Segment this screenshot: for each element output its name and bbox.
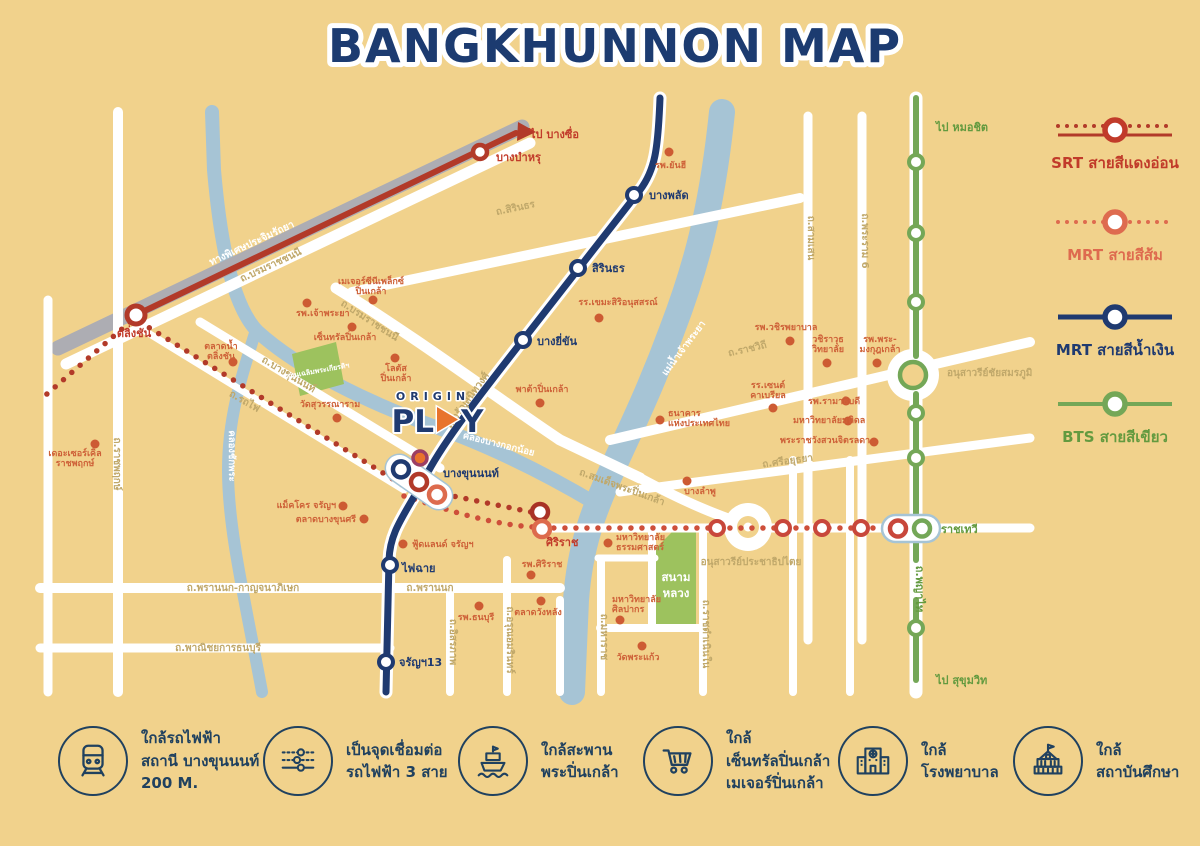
poi-dot [769, 404, 778, 413]
hospital-icon [852, 740, 894, 782]
poi-dot [683, 477, 692, 486]
station-bts-2 [909, 226, 923, 240]
map-label: ไฟฉาย [400, 561, 435, 575]
poi-dot [665, 148, 674, 157]
legend-green-label: BTS สายสีเขียว [1062, 428, 1168, 446]
bangkhunnon-map-page: ทางพิเศษประจิมรัถยาถ.บรมราชชนนีถ.บรมราชช… [0, 0, 1200, 846]
station-orange-4 [854, 521, 868, 535]
map-label: ฟู้ดแลนด์ จรัญฯ [412, 538, 474, 550]
map-label: ราชเทวี [941, 523, 978, 536]
map-label: ถ.พญาไท [913, 566, 927, 612]
map-label: ถ.พรานนก-กาญจนาภิเษก [187, 582, 299, 594]
map-label: ราชพฤกษ์ [56, 457, 95, 469]
feature-interchange: เป็นจุดเชื่อมต่อ รถไฟฟ้า 3 สาย [263, 726, 448, 796]
poi-dot [537, 597, 546, 606]
station-ratchathewi-interchange [882, 515, 940, 542]
page-title: BANGKHUNNON MAP [328, 19, 902, 73]
poi-dot [638, 642, 647, 651]
station-bts-6 [909, 621, 923, 635]
station-sirindhorn [571, 261, 585, 275]
boat-icon [472, 740, 514, 782]
map-label: ธรรมศาสตร์ [616, 541, 664, 553]
map-label: ถ.มหาราช [598, 614, 609, 661]
poi-dot [616, 616, 625, 625]
transit-lines-icon [277, 740, 319, 782]
map-label: มหาวิทยาลัยมหิดล [793, 415, 865, 426]
map-label: จรัญฯ13 [399, 656, 442, 669]
poi-dot [399, 540, 408, 549]
road-si-ayutthaya [620, 438, 1030, 492]
map-label: ถ.สามเสน [805, 216, 816, 261]
map-label: ศิลปากร [612, 604, 645, 615]
feature-strip: ใกล้รถไฟฟ้า สถานี บางขุนนนท์ 200 M. เป็น… [0, 706, 1200, 836]
map-label: คาเบรียล [750, 390, 786, 401]
legend-orange-label: MRT สายสีส้ม [1067, 246, 1163, 264]
map-label: ถ.พรานนก [406, 583, 453, 594]
poi-dot [91, 440, 100, 449]
feature-shopping: ใกล้ เซ็นทรัลปิ่นเกล้า เมเจอร์ปิ่นเกล้า [643, 726, 830, 796]
logo-origin-text: ORIGIN [396, 390, 470, 403]
station-bang-yi-khan [516, 333, 530, 347]
legend-blue-label: MRT สายสีน้ำเงิน [1056, 338, 1175, 359]
station-siriraj-mrt [534, 521, 550, 537]
map-label: วิทยาลัย [811, 344, 844, 355]
map-label: ตลาดบางขุนศรี [296, 514, 356, 525]
project-location-dot [413, 451, 427, 465]
poi-dot [303, 299, 312, 308]
poi-dot [333, 414, 342, 423]
map-label: รร.เซนต์ [751, 379, 785, 391]
legend-blue-station-icon [1105, 307, 1125, 327]
map-label: ถ.พาณิชยการธนบุรี [175, 642, 261, 654]
map-label: ตลาดวังหลัง [514, 607, 562, 618]
train-icon [72, 740, 114, 782]
map-label: รร.เขมะสิริอนุสสรณ์ [578, 296, 658, 308]
map-label: บางบำหรุ [496, 151, 541, 165]
feature-train: ใกล้รถไฟฟ้า สถานี บางขุนนนท์ 200 M. [58, 726, 259, 796]
poi-dot [823, 359, 832, 368]
poi-dot [786, 337, 795, 346]
legend-bts: BTS สายสีเขียว [1058, 394, 1172, 446]
map-label: หลวง [663, 586, 690, 600]
map-label: ถ.ราชวิถี [727, 339, 768, 360]
station-bang-bamru [473, 145, 487, 159]
poi-dot [656, 416, 665, 425]
poi-dot [870, 438, 879, 447]
map-label: ศิริราช [546, 536, 579, 549]
map-label: แม็คโคร จรัญฯ [277, 498, 336, 511]
poi-dot [536, 399, 545, 408]
station-bts-5 [909, 451, 923, 465]
map-label: พาต้าปิ่นเกล้า [516, 382, 569, 395]
map-label: ธนาคาร [668, 409, 701, 419]
feature-school: ใกล้ สถาบันศึกษา [1013, 726, 1179, 796]
map-labels-layer: ทางพิเศษประจิมรัถยาถ.บรมราชชนนีถ.บรมราชช… [48, 120, 1032, 688]
station-siriraj-srt [532, 504, 548, 520]
map-label: วัดสุวรรณาราม [300, 399, 360, 410]
poi-dot [595, 314, 604, 323]
map-label: เมเจอร์ซีนีเพล็กซ์ [338, 274, 404, 287]
map-label: รพ.ศิริราช [522, 559, 563, 570]
station-fai-chai [383, 558, 397, 572]
map-label: รพ.ธนบุรี [458, 612, 495, 623]
road-layer [40, 98, 1030, 692]
map-label: บางพลัด [649, 189, 689, 202]
station-orange-1 [710, 521, 724, 535]
map-label: รพ.วชิรพยาบาล [755, 322, 818, 333]
map-label: อนุสาวรีย์ประชาธิปไตย [701, 555, 802, 568]
map-label: มงกุฎเกล้า [860, 344, 901, 355]
map-label: ไป บางซื่อ [528, 126, 579, 141]
map-label: วัดพระแก้ว [617, 652, 660, 663]
map-label: ถ.พระราม 6 [859, 213, 870, 268]
map-label: บางขุนนนท์ [443, 467, 499, 481]
legend-mrt-orange: MRT สายสีส้ม [1058, 212, 1172, 264]
map-label: รพ.พระ- [863, 335, 897, 345]
legend-srt-station-icon [1105, 120, 1125, 140]
victory-monument-ring [900, 362, 926, 388]
legend: SRT สายสีแดงอ่อน MRT สายสีส้ม MRT สายสีน… [1051, 120, 1179, 446]
map-label: เซ็นทรัลปิ่นเกล้า [314, 330, 377, 343]
map-label: สนาม [662, 570, 691, 584]
map-label: อนุสาวรีย์ชัยสมรภูมิ [947, 367, 1032, 380]
poi-dot [475, 602, 484, 611]
cart-icon [657, 740, 699, 782]
feature-text: ใกล้รถไฟฟ้า [141, 727, 259, 750]
station-bts-1 [909, 155, 923, 169]
map-label: เดอะเซอร์เคิล [48, 447, 101, 459]
feature-bridge: ใกล้สะพาน พระปิ่นเกล้า [458, 726, 619, 796]
poi-dot [604, 539, 613, 548]
srt-line-solid [136, 133, 516, 315]
map-label: บางยี่ขัน [537, 333, 577, 348]
station-charan13 [379, 655, 393, 669]
map-label: วชิราวุธ [812, 334, 844, 345]
school-icon [1027, 740, 1069, 782]
legend-orange-station-icon [1105, 212, 1125, 232]
logo-pl-text: PL [392, 404, 434, 440]
map-label: มหาวิทยาลัย [612, 594, 661, 605]
poi-dot [873, 359, 882, 368]
map-label: มหาวิทยาลัย [616, 532, 665, 543]
map-label: รพ.เจ้าพระยา [296, 308, 350, 319]
map-label: ถ.สิรินธร [495, 198, 537, 218]
legend-srt: SRT สายสีแดงอ่อน [1051, 120, 1179, 172]
station-bts-3 [909, 295, 923, 309]
logo-y-text: Y [460, 404, 484, 440]
poi-dot [348, 323, 357, 332]
legend-srt-label: SRT สายสีแดงอ่อน [1051, 154, 1179, 172]
station-bang-phlat [627, 188, 641, 202]
map-label: ถ.อิสรภาพ [447, 619, 459, 666]
feature-hospital: ใกล้ โรงพยาบาล [838, 726, 999, 796]
map-label: บางลำพู [684, 486, 716, 497]
map-label: คลองชักพระ [226, 430, 237, 481]
station-taling-chan [127, 306, 145, 324]
map-label: ตลิ่งชัน [117, 325, 152, 340]
station-orange-2 [776, 521, 790, 535]
map-label: รพ.รามาธิบดี [808, 396, 860, 407]
poi-dot [527, 571, 536, 580]
legend-green-station-icon [1105, 394, 1125, 414]
map-label: พระราชวังสวนจิตรลดา [780, 435, 870, 446]
map-label: ไป หมอชิต [934, 120, 988, 134]
map-label: รพ.ยันฮี [655, 160, 686, 171]
station-bts-4 [909, 406, 923, 420]
map-label: โลตัส [384, 362, 407, 374]
poi-dot [391, 354, 400, 363]
map-label: ไป สุขุมวิท [934, 673, 987, 688]
poi-dot [339, 502, 348, 511]
legend-mrt-blue: MRT สายสีน้ำเงิน [1056, 307, 1175, 359]
map-label: ถ.ราชดำเนินใน [700, 600, 713, 669]
map-label: ถ.ราชพฤกษ์ [111, 438, 123, 491]
map-label: แห่งประเทศไทย [668, 417, 730, 429]
station-orange-3 [815, 521, 829, 535]
map-label: สิรินธร [592, 262, 625, 275]
poi-dot [360, 515, 369, 524]
